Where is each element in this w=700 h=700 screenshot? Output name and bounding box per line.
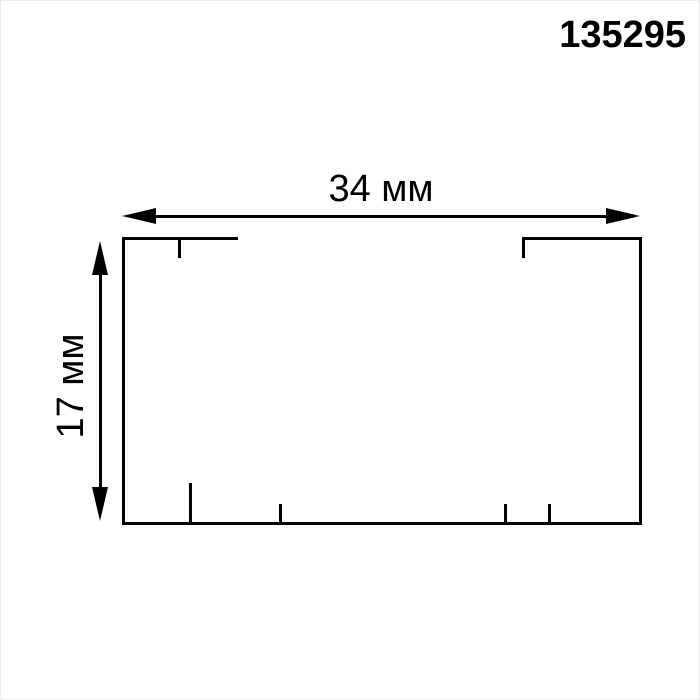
height-dimension-label: 17 мм	[49, 286, 93, 486]
width-dimension-label: 34 мм	[122, 167, 640, 211]
profile-bottom-notch-1	[189, 483, 192, 525]
article-number: 135295	[559, 13, 686, 57]
profile-bottom-edge	[122, 522, 642, 525]
profile-top-right-stub	[522, 237, 525, 258]
profile-bottom-notch-2	[279, 504, 282, 525]
profile-bottom-notch-3	[504, 504, 507, 525]
height-dimension-line	[99, 251, 102, 511]
profile-top-notch	[178, 237, 181, 258]
height-dimension-arrow-top-icon	[92, 241, 108, 275]
width-dimension-arrow-right-icon	[606, 208, 640, 224]
width-dimension-arrow-left-icon	[122, 208, 156, 224]
profile-left-edge	[122, 237, 125, 525]
profile-top-edge-right-segment	[522, 237, 642, 240]
dimension-drawing-canvas: 135295 34 мм 17 мм	[0, 0, 700, 700]
profile-bottom-notch-4	[548, 504, 551, 525]
height-dimension-arrow-bottom-icon	[92, 487, 108, 521]
profile-right-edge	[639, 237, 642, 525]
width-dimension-line	[151, 215, 611, 218]
